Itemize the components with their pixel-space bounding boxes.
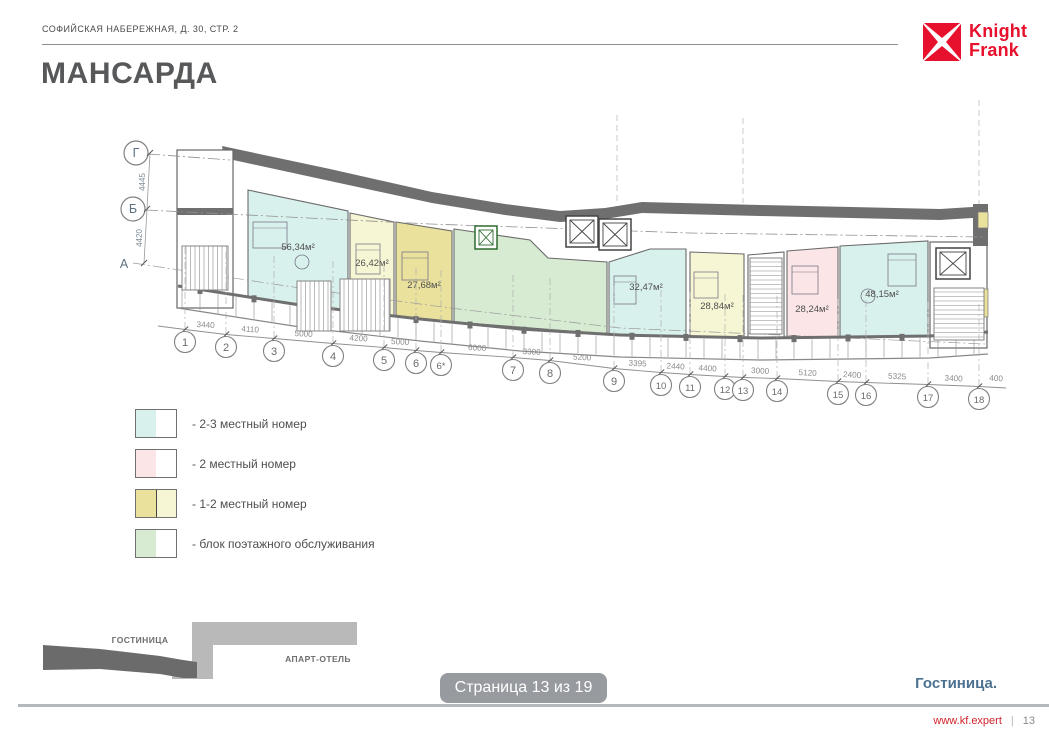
legend-swatch-2-3-bed	[135, 409, 177, 438]
dimension-label: 4200	[349, 334, 368, 344]
legend-label: - 2-3 местный номер	[192, 417, 307, 431]
row-axis-letter: Г	[133, 146, 140, 160]
grid-axis-number: 1	[182, 337, 188, 349]
legend-label: - блок поэтажного обслуживания	[192, 537, 375, 551]
left-dimension-label: 4445	[138, 173, 147, 191]
dimension-label: 2400	[843, 370, 862, 380]
legend-label: - 2 местный номер	[192, 457, 296, 471]
footer-divider	[18, 704, 1049, 707]
dimension-label: 3395	[628, 359, 647, 369]
footer-url-link[interactable]: www.kf.expert	[933, 715, 1001, 727]
room-1-2-bed-b	[396, 222, 452, 322]
legend-item: - 2-3 местный номер	[135, 409, 375, 438]
wall-pier	[576, 330, 581, 337]
dimension-label: 3000	[751, 366, 770, 376]
room-area-label: 48,15м²	[865, 289, 898, 300]
right-edge-room	[978, 212, 988, 228]
minimap-hotel-shape	[43, 645, 197, 678]
grid-axis-number: 3	[271, 346, 277, 358]
stair-flight	[182, 246, 228, 290]
footer-separator: |	[1011, 715, 1014, 727]
room-area-label: 27,68м²	[407, 280, 440, 291]
legend-swatch-2-bed	[135, 449, 177, 478]
wall-pier	[900, 334, 905, 341]
grid-axis-number: 17	[923, 393, 934, 404]
grid-axis-number: 9	[611, 376, 617, 388]
section-label: Гостиница.	[915, 675, 997, 692]
legend: - 2-3 местный номер - 2 местный номер - …	[135, 409, 375, 569]
grid-axis-number: 8	[547, 368, 553, 380]
dimension-label: 2440	[666, 362, 685, 372]
room-area-label: 28,24м²	[795, 304, 828, 315]
wall-pier	[630, 333, 635, 340]
wall-pier	[177, 208, 233, 215]
row-axis-letter: Б	[129, 202, 137, 216]
wall-pier	[738, 335, 743, 342]
dimension-label: 4400	[698, 364, 717, 374]
minimap-apart-label: АПАРТ-ОТЕЛЬ	[285, 654, 351, 664]
legend-swatch-1-2-bed	[135, 489, 177, 518]
grid-axis-number: 7	[510, 365, 516, 377]
dimension-label: 5000	[391, 337, 410, 347]
dimension-label: 5000	[294, 329, 313, 339]
footer: www.kf.expert | 13	[933, 715, 1035, 727]
dimension-label: 5325	[888, 372, 907, 382]
row-axis-letter: А	[120, 257, 129, 271]
page: СОФИЙСКАЯ НАБЕРЕЖНАЯ, Д. 30, СТР. 2 Knig…	[0, 0, 1049, 741]
stair-flight	[297, 281, 331, 331]
grid-axis-number: 14	[772, 387, 783, 398]
grid-axis-number: 16	[861, 391, 872, 402]
dimension-label: 3440	[196, 320, 215, 330]
dimension-label: 3300	[522, 347, 541, 357]
grid-axis-number: 2	[223, 342, 229, 354]
legend-item: - 2 местный номер	[135, 449, 375, 478]
grid-axis-number: 6	[413, 358, 419, 370]
grid-axis-number: 18	[974, 395, 985, 406]
grid-axis-number: 12	[720, 385, 731, 396]
grid-axis-number: 15	[833, 390, 844, 401]
dimension-label: 3400	[944, 374, 963, 384]
grid-axis-number: 13	[738, 386, 749, 397]
dimension-label: 4110	[241, 325, 259, 335]
page-indicator-badge: Страница 13 из 19	[440, 673, 607, 703]
stair-flight	[340, 279, 390, 331]
dimension-label: 6000	[468, 343, 487, 353]
wall-pier	[252, 295, 257, 302]
site-minimap: ГОСТИНИЦА АПАРТ-ОТЕЛЬ	[40, 612, 370, 697]
grid-axis-number: 6*	[437, 361, 446, 372]
wall-pier	[792, 335, 797, 342]
legend-item: - блок поэтажного обслуживания	[135, 529, 375, 558]
minimap-hotel-label: ГОСТИНИЦА	[112, 635, 169, 645]
wall-pier	[522, 327, 527, 334]
grid-axis-number: 4	[330, 351, 336, 363]
room-1-2-bed-c	[690, 252, 744, 337]
legend-item: - 1-2 местный номер	[135, 489, 375, 518]
dimension-label: 5120	[798, 368, 817, 378]
grid-axis-number: 10	[656, 381, 667, 392]
room-area-label: 28,84м²	[700, 301, 733, 312]
room-area-label: 56,34м²	[281, 242, 314, 253]
wall-pier	[684, 334, 689, 341]
legend-label: - 1-2 местный номер	[192, 497, 307, 511]
grid-axis-number: 5	[381, 355, 387, 367]
grid-axis-number: 11	[685, 383, 695, 394]
dimension-label: 400	[989, 374, 1004, 384]
left-dimension-label: 4420	[135, 229, 144, 247]
wall-pier	[846, 334, 851, 341]
minimap-apart-hotel-shape	[172, 622, 357, 679]
room-area-label: 32,47м²	[629, 282, 662, 293]
dimension-label: 5200	[573, 353, 592, 363]
room-2-bed	[787, 247, 838, 338]
legend-swatch-service-block	[135, 529, 177, 558]
wall-pier	[468, 322, 473, 329]
footer-page-number: 13	[1023, 715, 1035, 727]
